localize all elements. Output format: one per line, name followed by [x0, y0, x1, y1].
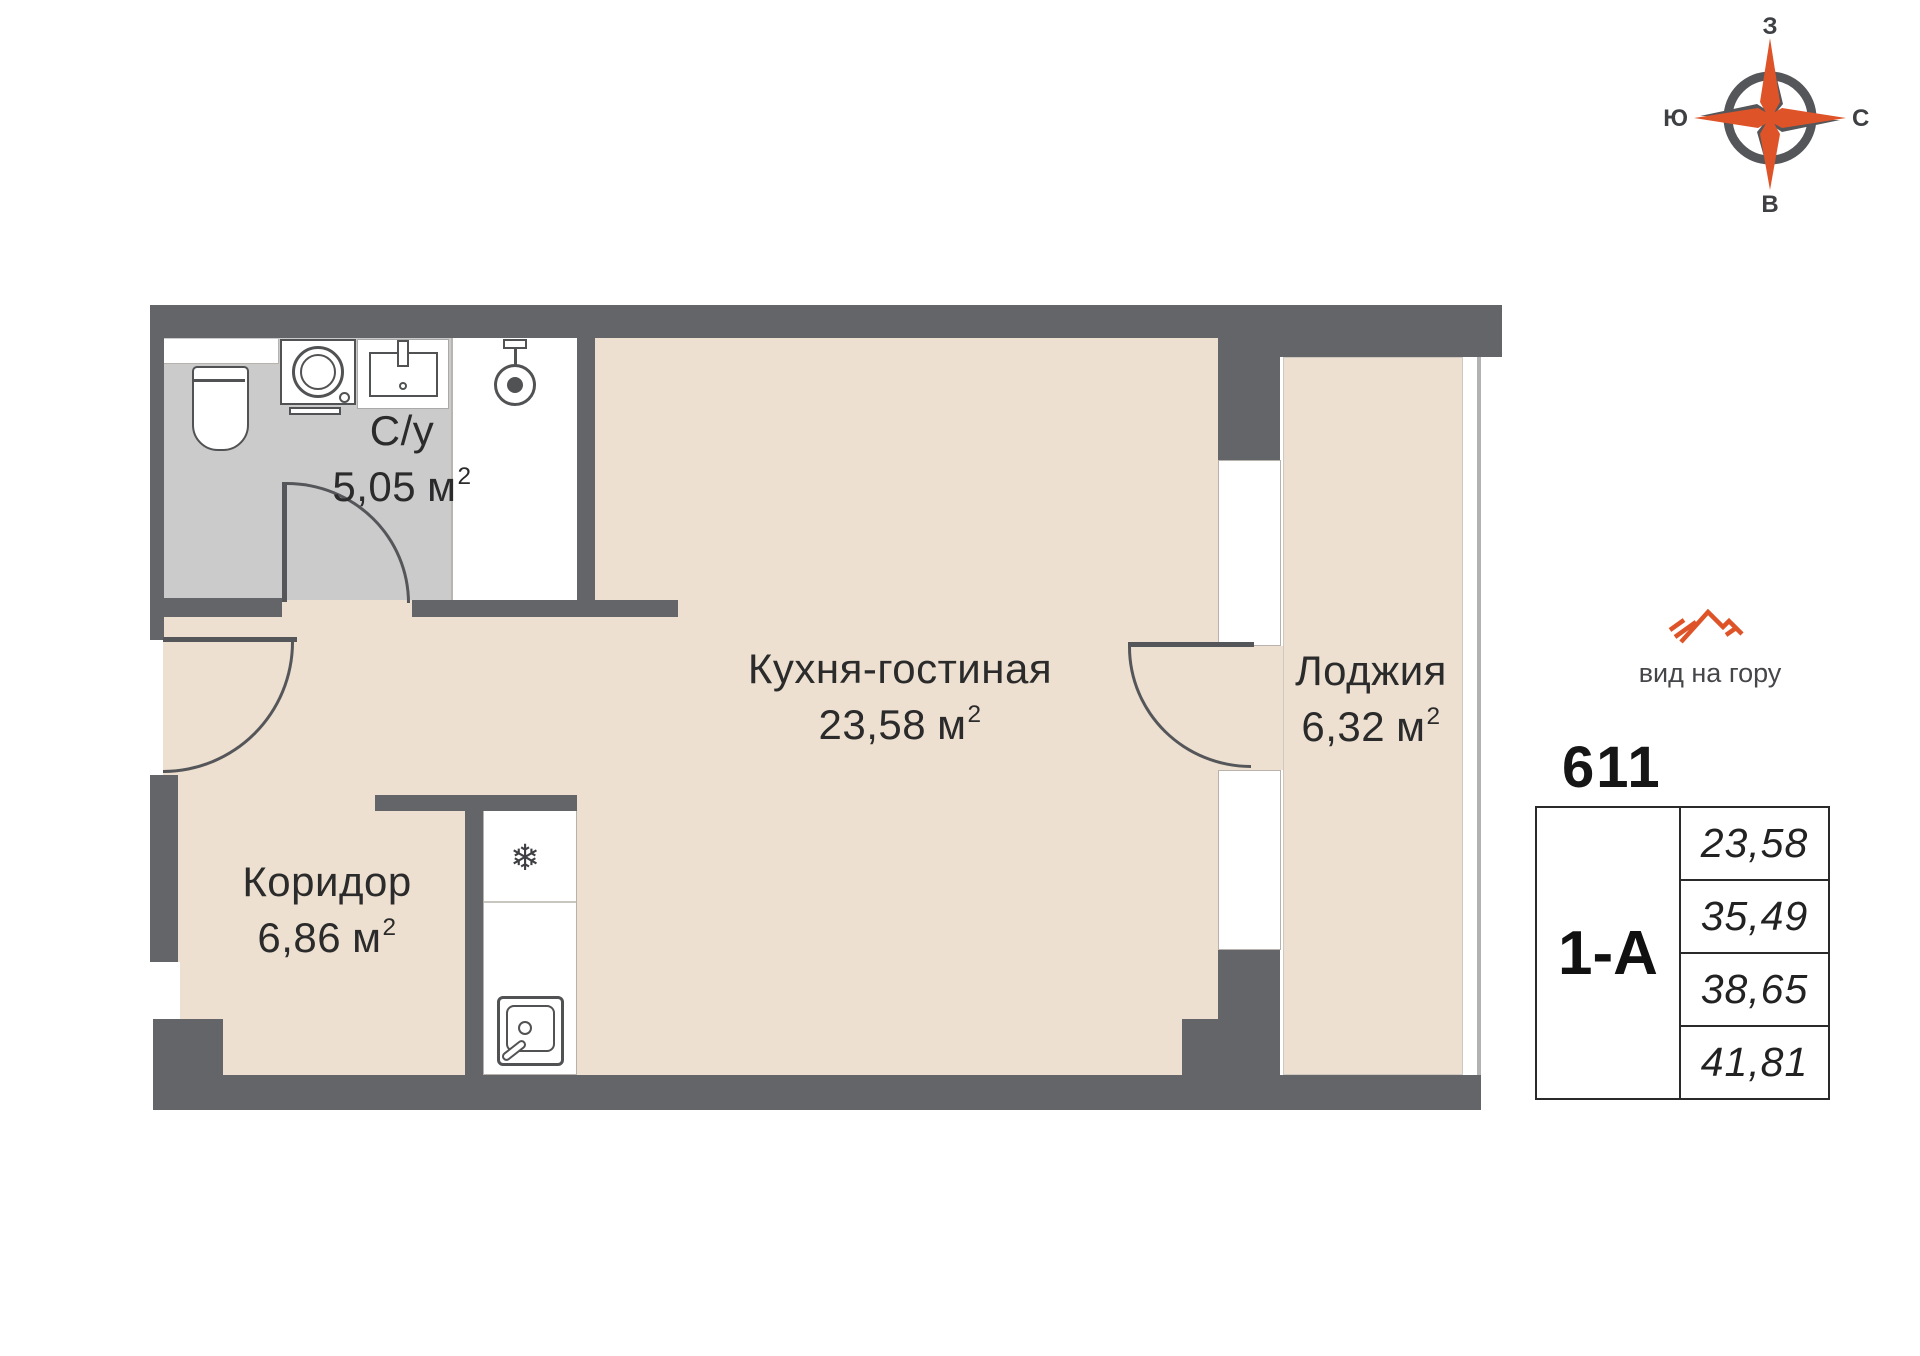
wall-bathroom-bottom-left — [163, 598, 282, 617]
wall-top-loggia — [1218, 305, 1502, 357]
washing-machine-knob — [339, 392, 350, 403]
toilet-tank-line — [194, 379, 245, 382]
mountain-icon — [1668, 602, 1752, 648]
room-name: Кухня-гостиная — [748, 645, 1052, 693]
floor-plan-page: { "compass": {"top": "З", "right": "С", … — [0, 0, 1920, 1356]
room-name: С/у — [332, 407, 471, 455]
compass-label-top: З — [1762, 13, 1777, 40]
bathroom-sink-drain — [399, 382, 407, 390]
wall-left-upper — [150, 305, 164, 640]
window-strip-lower — [1218, 770, 1281, 950]
view-note: вид на гору — [1639, 658, 1782, 689]
wall-kitchen-stub — [465, 795, 483, 1075]
layout-type-cell: 1-А — [1537, 808, 1681, 1098]
left-wall-niche — [136, 962, 180, 1019]
bathroom-shelf — [163, 339, 279, 364]
room-area: 5,05м2 — [332, 455, 471, 511]
wall-top — [150, 305, 1218, 338]
loggia-glazing-line — [1477, 357, 1481, 1075]
window-strip-upper — [1218, 460, 1281, 646]
shower-head-stem — [514, 349, 517, 365]
spec-area-total: 41,81 — [1681, 1027, 1828, 1098]
room-area: 6,86м2 — [242, 906, 411, 962]
spec-area-with-loggia-k05: 38,65 — [1681, 954, 1828, 1027]
shower-head-plate — [503, 339, 527, 349]
wall-left-block — [153, 1019, 223, 1110]
spec-values-column: 23,58 35,49 38,65 41,81 — [1681, 808, 1828, 1098]
wall-bottom-step — [1182, 1019, 1218, 1075]
compass-rose: З С В Ю — [1655, 8, 1885, 220]
spec-table: 1-А 23,58 35,49 38,65 41,81 — [1535, 806, 1830, 1100]
compass-label-right: С — [1852, 105, 1869, 132]
shower-head-dot — [507, 377, 523, 393]
apartment-number: 611 — [1562, 734, 1662, 801]
wall-bottom — [223, 1075, 1481, 1110]
spec-area-living: 23,58 — [1681, 808, 1828, 881]
compass-label-bottom: В — [1761, 191, 1778, 218]
room-label-corridor: Коридор 6,86м2 — [242, 858, 411, 962]
room-label-loggia: Лоджия 6,32м2 — [1295, 647, 1447, 751]
compass-label-left: Ю — [1663, 105, 1688, 132]
room-name: Лоджия — [1295, 647, 1447, 695]
bathroom-sink-faucet — [397, 340, 409, 367]
wall-bathroom-right — [577, 338, 595, 617]
wall-loggia-pillar-bottom — [1218, 950, 1280, 1075]
fridge-divider-line — [484, 901, 576, 903]
washing-machine-drum-inner — [300, 354, 336, 390]
room-label-bathroom: С/у 5,05м2 — [332, 407, 471, 511]
room-name: Коридор — [242, 858, 411, 906]
room-label-kitchen-living: Кухня-гостиная 23,58м2 — [748, 645, 1052, 749]
room-area: 23,58м2 — [748, 693, 1052, 749]
kitchen-sink-drain — [518, 1021, 532, 1035]
spec-area-apartment: 35,49 — [1681, 881, 1828, 954]
wall-left-middle — [150, 775, 178, 962]
snowflake-icon: ❄ — [510, 840, 540, 876]
room-area: 6,32м2 — [1295, 695, 1447, 751]
wall-bathroom-bottom-right — [412, 600, 678, 617]
wall-loggia-pillar-top — [1218, 357, 1280, 460]
